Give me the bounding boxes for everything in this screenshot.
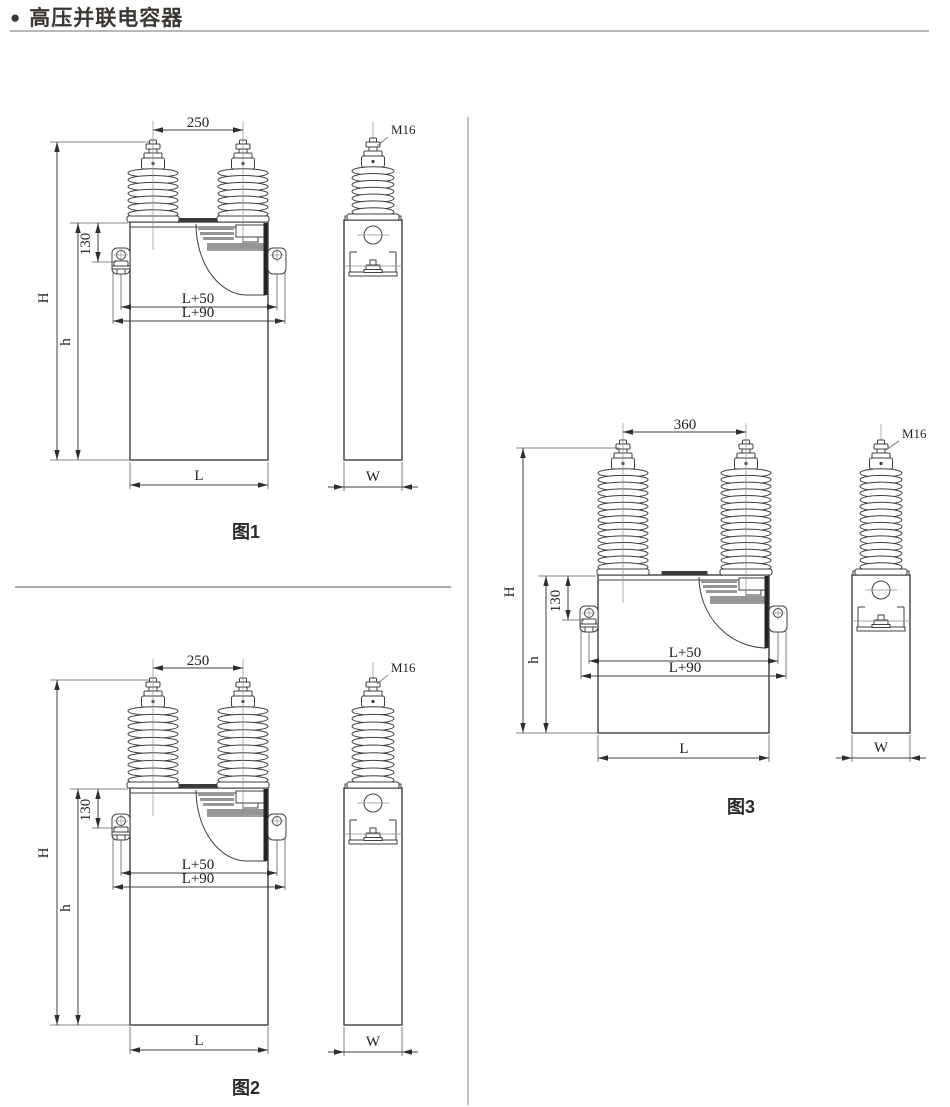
dim-label-bracket-spacing: L+90: [182, 871, 215, 887]
figure-3-side-view: M16: [851, 424, 927, 733]
dim-label-tank-height: h: [58, 338, 74, 346]
thread-size-label: M16: [902, 426, 927, 441]
dim-label-tank-length: L: [194, 468, 203, 484]
dim-label-bracket-offset: 130: [548, 590, 564, 613]
dim-label-overall-height: H: [36, 292, 52, 303]
thread-size-label: M16: [391, 122, 416, 137]
dim-label-terminal-spacing: 250: [187, 653, 210, 669]
drawing-svg: M16250Hh130L+50L+90LW图1M16250Hh130L+50L+…: [0, 0, 950, 1107]
dim-label-bracket-spacing: L+90: [182, 305, 215, 321]
figure-3: M16360Hh130L+50L+90LW图3: [502, 417, 927, 817]
thread-size-label: M16: [391, 660, 416, 675]
figure-2-front-view: [112, 678, 286, 1025]
dim-label-tank-height: h: [58, 904, 74, 912]
figure-2-side-view: M16: [343, 660, 416, 1025]
dim-label-bracket-spacing: L+90: [669, 660, 702, 676]
dim-label-overall-height: H: [502, 586, 518, 597]
figure-caption: 图3: [727, 797, 755, 817]
figure-caption: 图1: [232, 522, 260, 542]
dim-label-tank-width: W: [366, 469, 381, 485]
dim-label-tank-width: W: [366, 1034, 381, 1050]
dim-label-tank-length: L: [194, 1033, 203, 1049]
dim-label-tank-length: L: [679, 741, 688, 757]
figure-1-side-view: M16: [343, 122, 416, 460]
dim-label-tank-height: h: [526, 656, 542, 664]
dim-label-terminal-spacing: 250: [187, 115, 210, 131]
dim-label-tank-width: W: [874, 740, 889, 756]
dim-label-overall-height: H: [36, 847, 52, 858]
dim-label-terminal-spacing: 360: [674, 417, 697, 433]
figure-1: M16250Hh130L+50L+90LW图1: [36, 115, 418, 542]
figure-3-front-view: [580, 440, 787, 733]
dim-label-hole-spacing: L+50: [669, 645, 702, 661]
catalog-page: ● 高压并联电容器 M16250Hh130L+50L+90LW图1M16250H…: [0, 0, 950, 1107]
figure-2: M16250Hh130L+50L+90LW图2: [36, 653, 418, 1098]
figure-caption: 图2: [232, 1078, 260, 1098]
dim-label-bracket-offset: 130: [78, 799, 94, 822]
dim-label-bracket-offset: 130: [78, 233, 94, 256]
